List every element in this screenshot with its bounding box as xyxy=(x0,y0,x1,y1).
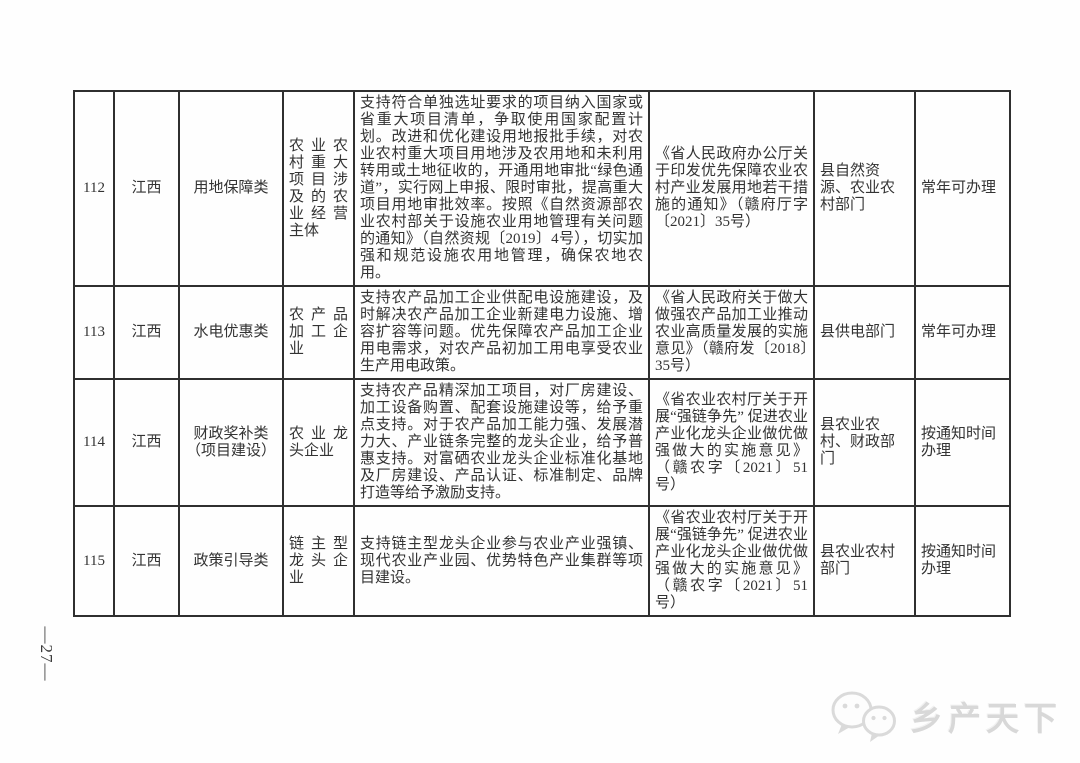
cell-handle-time: 按通知时间办理 xyxy=(915,379,1010,506)
table-row: 114 江西 财政奖补类（项目建设） 农业龙头企业 支持农产品精深加工项目，对厂… xyxy=(74,379,1010,506)
cell-region: 江西 xyxy=(114,506,179,616)
cell-entity: 农业龙头企业 xyxy=(283,379,354,506)
cell-row-number: 112 xyxy=(74,91,114,286)
cell-description: 支持农产品加工企业供配电设施建设，及时解决农产品加工企业新建电力设施、增容扩容等… xyxy=(354,286,649,379)
wechat-bubbles-icon xyxy=(828,688,902,744)
cell-handle-time: 按通知时间办理 xyxy=(915,506,1010,616)
cell-region: 江西 xyxy=(114,91,179,286)
table-row: 112 江西 用地保障类 农业农村重大项目涉及的农业经营主体 支持符合单独选址要… xyxy=(74,91,1010,286)
cell-entity: 农业农村重大项目涉及的农业经营主体 xyxy=(283,91,354,286)
cell-policy-doc: 《省农业农村厅关于开展“强链争先” 促进农业产业化龙头企业做优做强做大的实施意见… xyxy=(649,506,814,616)
document-page: 112 江西 用地保障类 农业农村重大项目涉及的农业经营主体 支持符合单独选址要… xyxy=(0,0,1080,763)
cell-description: 支持链主型龙头企业参与农业产业强镇、现代农业产业园、优势特色产业集群等项目建设。 xyxy=(354,506,649,616)
cell-policy-doc: 《省人民政府关于做大做强农产品加工业推动农业高质量发展的实施意见》（赣府发〔20… xyxy=(649,286,814,379)
page-number: —27— xyxy=(36,614,56,694)
cell-policy-doc: 《省农业农村厅关于开展“强链争先” 促进农业产业化龙头企业做优做强做大的实施意见… xyxy=(649,379,814,506)
cell-category: 水电优惠类 xyxy=(179,286,283,379)
cell-description: 支持农产品精深加工项目，对厂房建设、加工设备购置、配套设施建设等，给予重点支持。… xyxy=(354,379,649,506)
cell-category: 财政奖补类（项目建设） xyxy=(179,379,283,506)
cell-category: 政策引导类 xyxy=(179,506,283,616)
policy-table: 112 江西 用地保障类 农业农村重大项目涉及的农业经营主体 支持符合单独选址要… xyxy=(73,90,1011,617)
cell-row-number: 115 xyxy=(74,506,114,616)
cell-region: 江西 xyxy=(114,379,179,506)
table-row: 113 江西 水电优惠类 农产品加工企业 支持农产品加工企业供配电设施建设，及时… xyxy=(74,286,1010,379)
watermark: 乡产天下 xyxy=(828,688,1062,744)
cell-row-number: 113 xyxy=(74,286,114,379)
cell-policy-doc: 《省人民政府办公厅关于印发优先保障农业农村产业发展用地若干措施的通知》（赣府厅字… xyxy=(649,91,814,286)
table-row: 115 江西 政策引导类 链主型龙头企业 支持链主型龙头企业参与农业产业强镇、现… xyxy=(74,506,1010,616)
cell-region: 江西 xyxy=(114,286,179,379)
cell-handle-time: 常年可办理 xyxy=(915,91,1010,286)
cell-description: 支持符合单独选址要求的项目纳入国家或省重大项目清单，争取使用国家配置计划。改进和… xyxy=(354,91,649,286)
cell-entity: 农产品加工企业 xyxy=(283,286,354,379)
cell-handle-time: 常年可办理 xyxy=(915,286,1010,379)
cell-row-number: 114 xyxy=(74,379,114,506)
cell-department: 县自然资源、农业农村部门 xyxy=(814,91,915,286)
cell-department: 县农业农村、财政部门 xyxy=(814,379,915,506)
cell-category: 用地保障类 xyxy=(179,91,283,286)
cell-entity: 链主型龙头企业 xyxy=(283,506,354,616)
cell-department: 县农业农村部门 xyxy=(814,506,915,616)
watermark-brand: 乡产天下 xyxy=(910,692,1062,740)
cell-department: 县供电部门 xyxy=(814,286,915,379)
